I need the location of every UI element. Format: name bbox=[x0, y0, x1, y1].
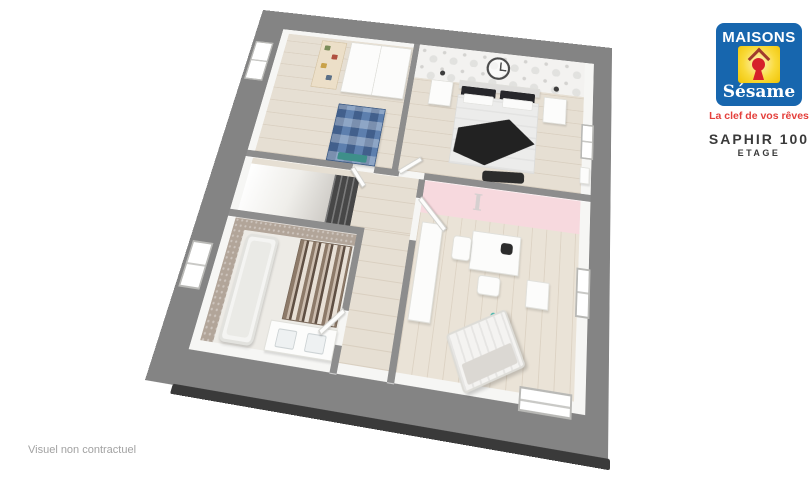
bathroom-window bbox=[178, 240, 213, 290]
sink-basin bbox=[304, 333, 327, 355]
desk-item bbox=[500, 243, 513, 256]
wardrobe-bedroom1 bbox=[340, 42, 412, 99]
kids-stool bbox=[476, 274, 500, 297]
wall-lamp-icon bbox=[554, 86, 560, 92]
bedroom1-window bbox=[244, 41, 274, 81]
side-table bbox=[525, 280, 550, 311]
shelf-item bbox=[325, 75, 332, 81]
brand-tagline: La clef de vos rêves bbox=[694, 110, 811, 122]
shelf-item bbox=[324, 45, 331, 50]
master-window bbox=[580, 124, 594, 160]
picture-frame bbox=[579, 167, 589, 185]
model-name: SAPHIR 100 bbox=[694, 131, 811, 147]
nightstand-left bbox=[428, 79, 454, 106]
logo-text-sesame: Sésame bbox=[723, 83, 795, 102]
nightstand-right bbox=[542, 97, 566, 125]
kids-desk bbox=[469, 230, 522, 276]
shelf-item bbox=[320, 63, 327, 68]
disclaimer-text: Visuel non contractuel bbox=[28, 444, 136, 456]
model-level: ETAGE bbox=[694, 148, 811, 158]
logo-text-maisons: MAISONS bbox=[722, 29, 796, 46]
kids-chair bbox=[451, 235, 472, 262]
maisons-sesame-logo: MAISONS Sésame bbox=[716, 23, 802, 106]
floorplan-3d: I bbox=[145, 10, 612, 460]
keyhole-icon bbox=[738, 46, 780, 83]
kids-window-right bbox=[575, 268, 591, 320]
shelf-item bbox=[331, 54, 338, 59]
sink-basin bbox=[274, 328, 297, 350]
